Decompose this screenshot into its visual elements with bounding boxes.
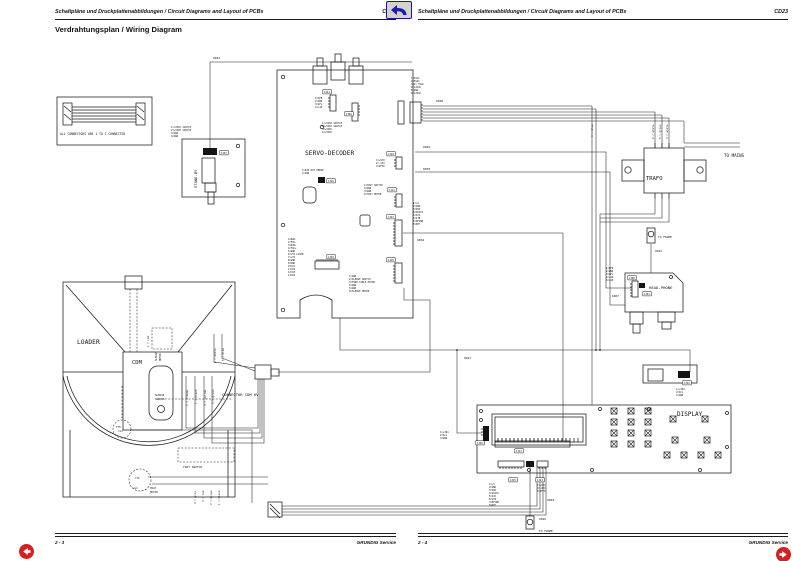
wire-6001 bbox=[210, 62, 412, 149]
connector-ref-1366: 1366 bbox=[346, 113, 352, 116]
pin-label: 4=TRAY MOTOR bbox=[364, 193, 382, 196]
wire-to-mains bbox=[684, 143, 740, 147]
footer-rule-left bbox=[55, 533, 396, 534]
pin-label: 6=SLEDGE MOTOR bbox=[349, 290, 370, 293]
brand-right: GRUNDIG Service bbox=[749, 540, 788, 545]
pin-label: 3=GND bbox=[440, 437, 448, 440]
standby-board bbox=[182, 139, 245, 204]
board-title-head-phone: HEAD-PHONE bbox=[649, 285, 673, 290]
wire-color-label: 4 = white bbox=[665, 124, 669, 139]
pin-label: 4=GND bbox=[171, 135, 179, 138]
wire-color-label: 6 = white bbox=[213, 348, 217, 363]
wire-6004 bbox=[403, 233, 563, 441]
part-label-cta: CTA bbox=[135, 476, 140, 480]
connector-ref-1325: 1325 bbox=[510, 479, 516, 482]
wire-color-label: 5 = green bbox=[658, 124, 662, 139]
junction-dot bbox=[599, 349, 601, 351]
wire-color-label: red bbox=[133, 486, 138, 490]
board-title-standby: STAND-BY bbox=[193, 169, 198, 188]
wire-color-label: 4 = yellow bbox=[203, 389, 207, 406]
wire-6003 bbox=[415, 172, 625, 305]
part-label-sledge-switch: SWITCH bbox=[155, 397, 165, 401]
wire-color-label: 3 = blue bbox=[590, 124, 594, 137]
part-label-sledge-motor: SLEDGE bbox=[154, 351, 158, 361]
part-label-tray-motor: MOTOR bbox=[150, 490, 158, 494]
label-to-mains: TO MAINS bbox=[724, 153, 745, 158]
key-buttons bbox=[611, 408, 721, 458]
frame-lug-display bbox=[526, 516, 534, 529]
pin-label: 4=+5VDC bbox=[322, 131, 333, 134]
junction-dot bbox=[595, 349, 597, 351]
wire-color-label: 2 = orange bbox=[185, 389, 189, 406]
wire-color-label: 1 = red bbox=[146, 336, 150, 347]
page-number-right: 2 - 4 bbox=[418, 540, 427, 545]
connector-ref-1363: 1363 bbox=[477, 442, 483, 445]
wire-1363 bbox=[457, 350, 482, 433]
board-title-loader: LOADER bbox=[77, 339, 100, 346]
wire-ref-9022: 9022 bbox=[655, 249, 662, 253]
wire-color-label: red bbox=[118, 429, 123, 433]
right-arrow-icon bbox=[776, 547, 791, 561]
left-arrow-icon bbox=[19, 544, 34, 559]
brand-left: GRUNDIG Service bbox=[357, 540, 396, 545]
wire-tray-bundle bbox=[282, 467, 546, 515]
wire-ref-6007: 6007 bbox=[612, 294, 619, 298]
connector-ref-1361: 1361 bbox=[324, 91, 330, 94]
page-number-left: 2 - 3 bbox=[55, 540, 64, 545]
wire-bundle-6009 bbox=[423, 106, 684, 121]
servo-decoder-board bbox=[277, 54, 413, 318]
connector-ref-1327: 1327 bbox=[516, 450, 522, 453]
rca-jacks bbox=[313, 54, 363, 84]
connector-ref-1380: 1380 bbox=[629, 277, 635, 280]
wire-color-label: 4 = grey bbox=[193, 491, 197, 504]
connector-label-cdm6v: CONNECTOR CDM 6V bbox=[222, 392, 259, 397]
wire-color-label: 6 = white bbox=[651, 124, 655, 139]
sensor-board bbox=[643, 365, 697, 383]
wire-cdm bbox=[278, 288, 430, 372]
board-title-trafo: TRAFO bbox=[646, 176, 663, 182]
part-label-sledge-switch: SLEDGE bbox=[155, 393, 165, 397]
pin-label: 13=D4 bbox=[288, 274, 296, 277]
connector-ref-1321: 1321 bbox=[389, 189, 395, 192]
wire-ref-6002: 6002 bbox=[423, 145, 430, 149]
wire-9021 bbox=[340, 318, 690, 372]
wire-ref-6004: 6004 bbox=[417, 238, 424, 242]
connector-ref-1329: 1329 bbox=[328, 180, 334, 183]
footer-right: 2 - 4 GRUNDIG Service bbox=[418, 540, 788, 545]
back-button[interactable] bbox=[386, 1, 412, 19]
boards bbox=[57, 54, 731, 529]
mains-connector bbox=[398, 101, 423, 124]
wire-ref-6001: 6001 bbox=[213, 56, 220, 60]
footer-rule-right-thick bbox=[418, 536, 788, 538]
connector-ref-1302: 1302 bbox=[328, 256, 334, 259]
wire-color-label: 5 = blue bbox=[221, 348, 225, 361]
connector-ref-1367: 1367 bbox=[221, 152, 227, 155]
connector-ref-1323: 1323 bbox=[388, 216, 394, 219]
footer-rule-right bbox=[418, 533, 788, 534]
pin-label: 3=GND bbox=[676, 394, 684, 397]
connector-ref-1381: 1381 bbox=[644, 293, 650, 296]
diagram-labels: ALL CONNECTORS ARE 1 TO 1 CONNECTED60011… bbox=[60, 56, 745, 533]
pin-label: 3=VFTD bbox=[376, 165, 385, 168]
part-label-tray-switch: TRAY SWITCH bbox=[183, 465, 202, 469]
wire-loader-bottom bbox=[186, 376, 264, 443]
wire-ref-9021: 9021 bbox=[464, 356, 471, 360]
note-box bbox=[57, 97, 152, 145]
wire-ref-6009: 6009 bbox=[436, 99, 443, 103]
loader-assembly bbox=[63, 276, 235, 497]
head-phone-board bbox=[625, 273, 683, 333]
connector-ref-1324: 1324 bbox=[537, 479, 543, 482]
junction-dot bbox=[456, 349, 458, 351]
board-title-cdm: CDM bbox=[132, 360, 143, 366]
wire-color-label: 2 = brown bbox=[209, 490, 213, 505]
dashed-details bbox=[113, 289, 234, 491]
pin-label: 8=KEY bbox=[413, 223, 421, 226]
wire-color-label: 1 = black bbox=[217, 490, 221, 505]
wire-color-label: 3 = red bbox=[201, 490, 205, 502]
board-title-display: DISPLAY bbox=[677, 411, 703, 418]
part-label-tth: TTH bbox=[116, 425, 121, 429]
pin-label: 6=12VAC bbox=[411, 92, 422, 95]
pin-label: 4=+10 bbox=[315, 106, 323, 109]
wire-ref-6003: 6003 bbox=[423, 167, 430, 171]
pin-label: 3=VFTD bbox=[537, 490, 546, 493]
prev-page-button[interactable] bbox=[19, 544, 34, 559]
note-text: ALL CONNECTORS ARE 1 TO 1 CONNECTED bbox=[60, 132, 125, 136]
wire-6002 bbox=[415, 152, 632, 288]
part-label-tray-motor: TRAY bbox=[150, 486, 157, 490]
label-to-frame: TO FRAME bbox=[658, 235, 672, 239]
wire-ref-6003: 6003 bbox=[547, 498, 554, 502]
wire-color-label: 1 = black bbox=[194, 389, 198, 404]
footer-rule-left-thick bbox=[55, 536, 396, 538]
connector-ref-1362: 1362 bbox=[684, 382, 690, 385]
footer-left: 2 - 3 GRUNDIG Service bbox=[55, 540, 396, 545]
connector-ref-1328: 1328 bbox=[388, 259, 394, 262]
wire-ref-9020: 9020 bbox=[539, 517, 546, 521]
return-arrow-icon bbox=[388, 3, 410, 17]
part-label-sledge-motor: MOTOR bbox=[158, 353, 162, 361]
wire-color-label: 3 = green bbox=[211, 389, 215, 404]
cdm-connector bbox=[255, 365, 279, 379]
pin-label: 2=GND bbox=[302, 172, 310, 175]
connector-ref-1320: 1320 bbox=[388, 153, 394, 156]
pin-label: 5=+10 bbox=[606, 279, 614, 282]
trafo bbox=[622, 143, 706, 199]
document-page: Schaltpläne und Druckplattenabbildungen … bbox=[0, 0, 793, 561]
board-title-servo-decoder: SERVO-DECODER bbox=[305, 150, 354, 157]
tray-connector bbox=[268, 502, 282, 518]
pin-label: 8=KEY bbox=[489, 504, 497, 507]
wiring-diagram: ALL CONNECTORS ARE 1 TO 1 CONNECTED60011… bbox=[0, 0, 793, 561]
next-page-button[interactable] bbox=[776, 547, 791, 561]
frame-lug-headphone bbox=[647, 228, 655, 243]
